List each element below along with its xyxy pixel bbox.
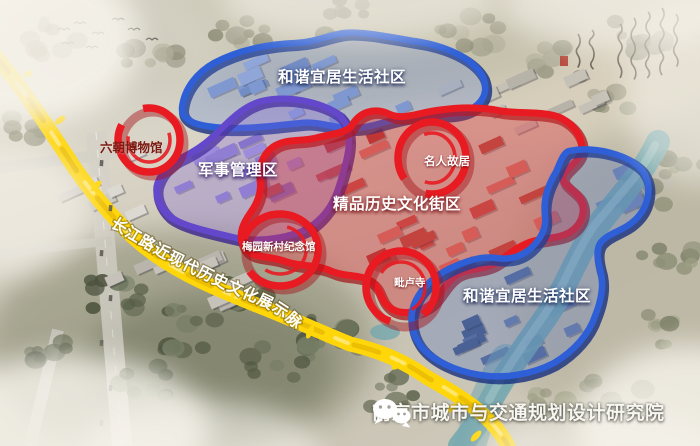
calligraphy-seal bbox=[560, 56, 568, 66]
master-plan-map: 长江路近现代历史文化展示脉 bbox=[0, 0, 700, 446]
landmark-label-pilu-temple: 毗卢寺 bbox=[394, 278, 426, 290]
zone-label-south-community: 和谐宜居生活社区 bbox=[463, 288, 591, 305]
landmark-label-celebrity-residences: 名人故居 bbox=[424, 155, 470, 168]
zone-label-military: 军事管理区 bbox=[198, 162, 278, 179]
landmark-label-six-dynasties-museum: 六朝博物馆 bbox=[100, 141, 163, 155]
zone-label-north-community: 和谐宜居生活社区 bbox=[278, 69, 406, 86]
watermark-bar: 南京市城市与交通规划设计研究院 bbox=[372, 398, 665, 425]
map-artwork: 长江路近现代历史文化展示脉 bbox=[0, 0, 700, 446]
landmark-label-meiyuan-memorial: 梅园新村纪念馆 bbox=[242, 242, 316, 254]
wechat-icon bbox=[372, 398, 412, 430]
organization-name: 南京市城市与交通规划设计研究院 bbox=[372, 398, 665, 425]
zone-label-historic-district: 精品历史文化街区 bbox=[333, 196, 461, 213]
